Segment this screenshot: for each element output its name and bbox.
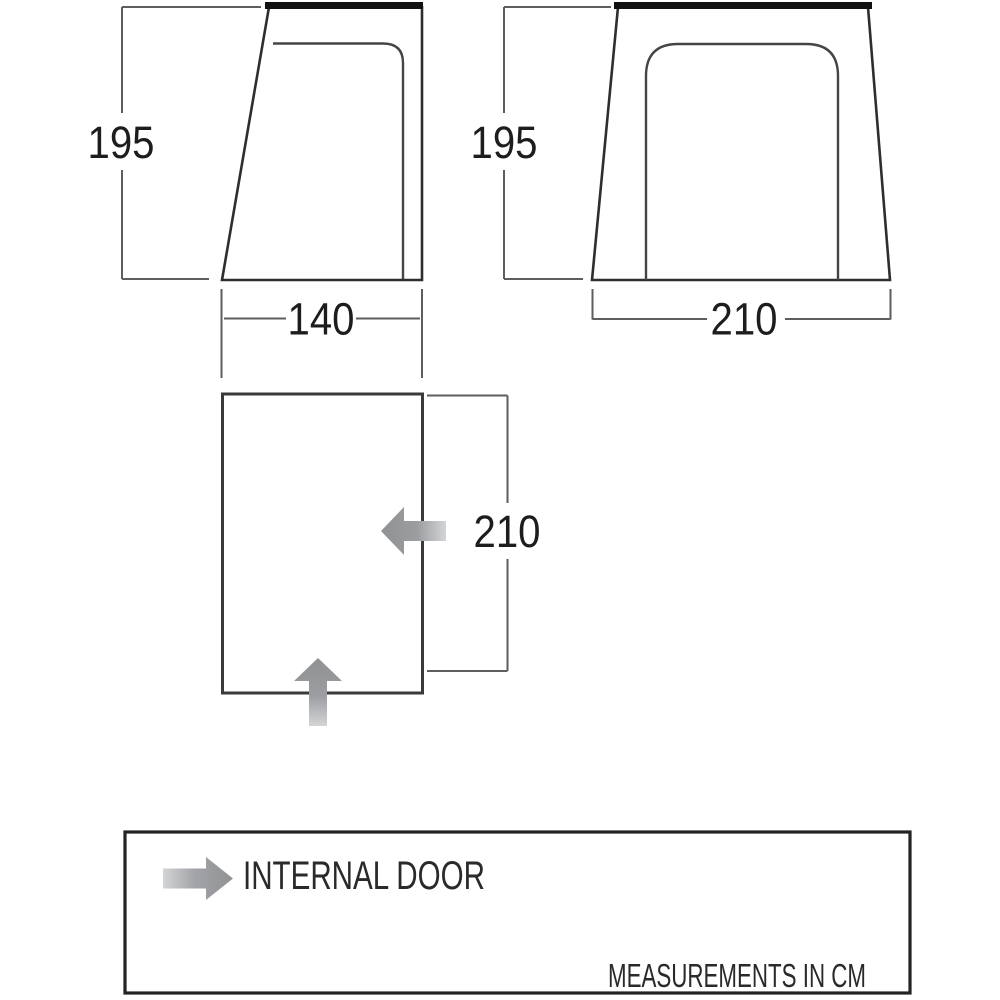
diagram-page: 195 140 195 210 [0,0,1000,1000]
legend-units-note: MEASUREMENTS IN CM [608,957,866,994]
tent-side-view [222,6,423,281]
legend-internal-door-label: INTERNAL DOOR [243,854,485,898]
side-view-width-label: 140 [288,294,355,345]
floor-plan [223,394,447,726]
floor-plan-outline [223,394,423,693]
side-view-height-label: 195 [88,117,155,168]
side-view-outline [222,7,422,280]
tent-front-view [592,6,890,281]
front-view-height-label: 195 [471,117,538,168]
floor-plan-depth-label: 210 [474,506,541,557]
legend: INTERNAL DOOR MEASUREMENTS IN CM [125,832,910,994]
front-view-width-label: 210 [711,294,778,345]
front-view-outline [592,7,890,280]
awning-dimension-diagram: 195 140 195 210 [0,0,1000,1000]
